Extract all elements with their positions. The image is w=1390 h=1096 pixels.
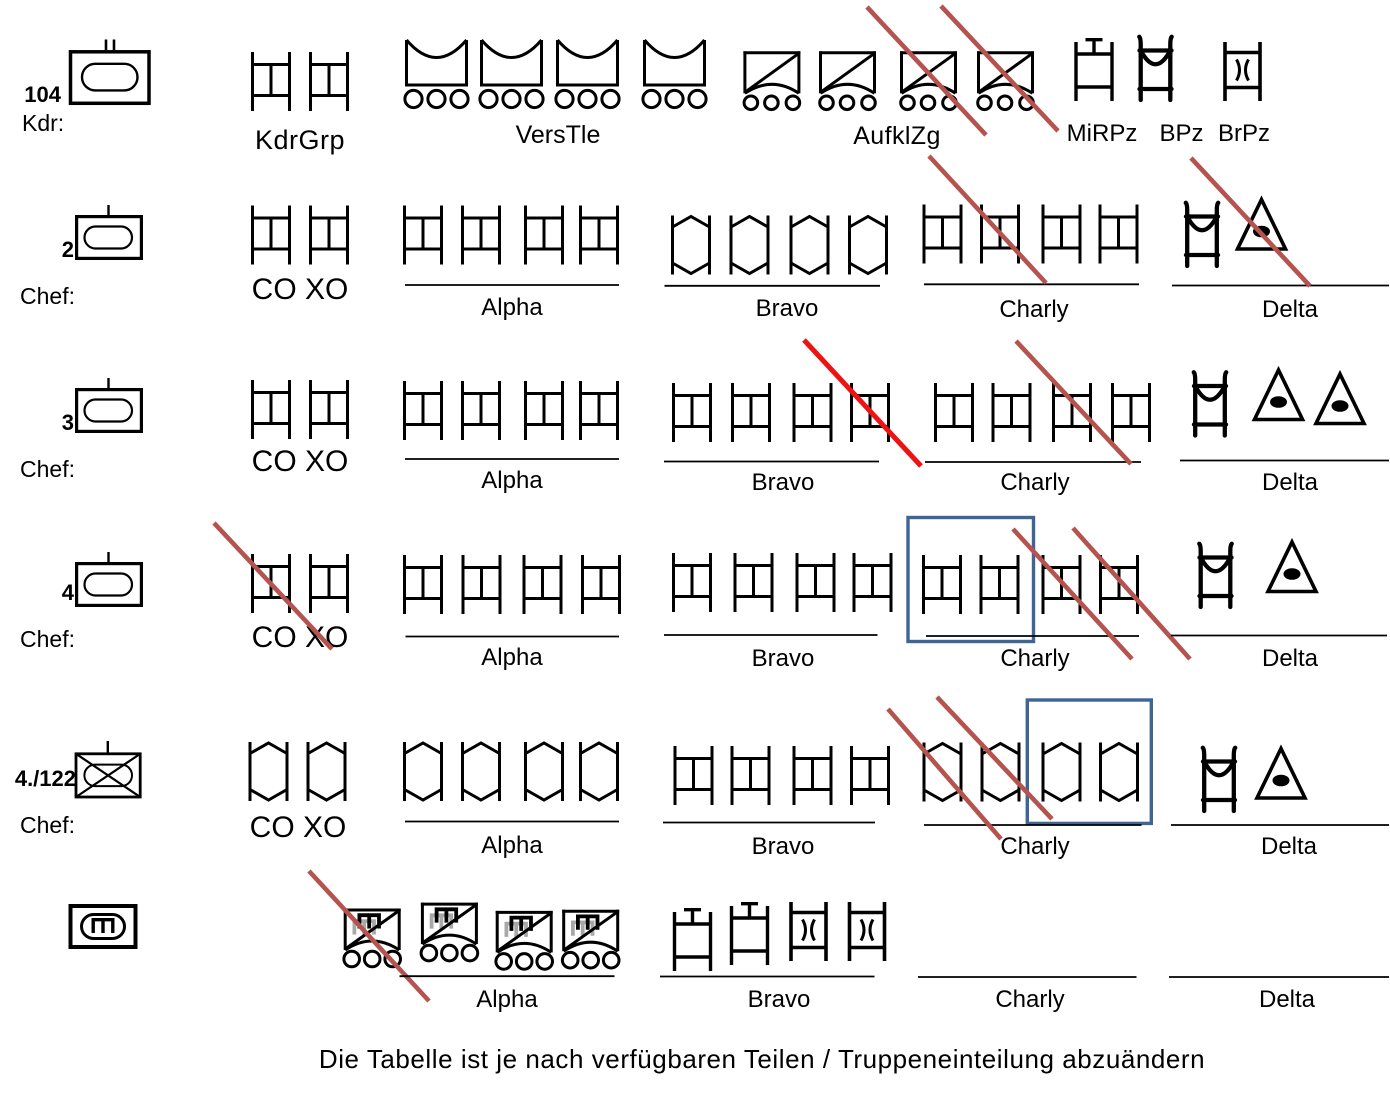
svg-text:Alpha: Alpha — [481, 294, 543, 321]
svg-text:CO XO: CO XO — [252, 273, 349, 306]
svg-text:Bravo: Bravo — [756, 295, 819, 322]
svg-text:Alpha: Alpha — [481, 644, 543, 671]
svg-text:Alpha: Alpha — [481, 832, 543, 859]
svg-text:Delta: Delta — [1259, 986, 1316, 1013]
svg-text:2: 2 — [62, 237, 74, 262]
svg-text:KdrGrp: KdrGrp — [255, 125, 345, 155]
svg-text:Bravo: Bravo — [752, 833, 815, 860]
svg-text:Chef:: Chef: — [20, 283, 75, 309]
svg-text:Chef:: Chef: — [20, 812, 75, 838]
svg-text:Charly: Charly — [1000, 833, 1069, 860]
svg-text:4: 4 — [62, 580, 75, 605]
svg-text:Kdr:: Kdr: — [22, 110, 64, 136]
svg-text:Chef:: Chef: — [20, 626, 75, 652]
svg-text:Delta: Delta — [1262, 469, 1319, 496]
svg-text:CO XO: CO XO — [252, 621, 349, 654]
svg-text:Charly: Charly — [1000, 469, 1069, 496]
svg-text:AufklZg: AufklZg — [853, 122, 941, 150]
svg-text:Bravo: Bravo — [752, 645, 815, 672]
svg-text:VersTle: VersTle — [516, 121, 601, 149]
svg-text:Alpha: Alpha — [481, 467, 543, 494]
svg-text:Delta: Delta — [1262, 296, 1319, 323]
svg-text:Delta: Delta — [1262, 645, 1319, 672]
svg-text:Bravo: Bravo — [752, 469, 815, 496]
svg-text:4./122: 4./122 — [15, 766, 76, 791]
svg-text:Delta: Delta — [1261, 833, 1318, 860]
svg-text:Die Tabelle ist je nach verfüg: Die Tabelle ist je nach verfügbaren Teil… — [319, 1044, 1205, 1074]
svg-text:Chef:: Chef: — [20, 456, 75, 482]
svg-text:CO XO: CO XO — [250, 811, 347, 844]
svg-text:104: 104 — [24, 82, 61, 107]
svg-text:Bravo: Bravo — [748, 986, 811, 1013]
svg-text:MiRPz: MiRPz — [1067, 120, 1138, 147]
svg-text:BPz: BPz — [1159, 120, 1203, 147]
svg-text:Alpha: Alpha — [476, 986, 538, 1013]
svg-text:3: 3 — [62, 410, 74, 435]
svg-text:Charly: Charly — [995, 986, 1064, 1013]
svg-text:Charly: Charly — [1000, 645, 1069, 672]
svg-text:Charly: Charly — [999, 296, 1068, 323]
svg-text:CO XO: CO XO — [252, 445, 349, 478]
svg-text:BrPz: BrPz — [1218, 120, 1270, 147]
